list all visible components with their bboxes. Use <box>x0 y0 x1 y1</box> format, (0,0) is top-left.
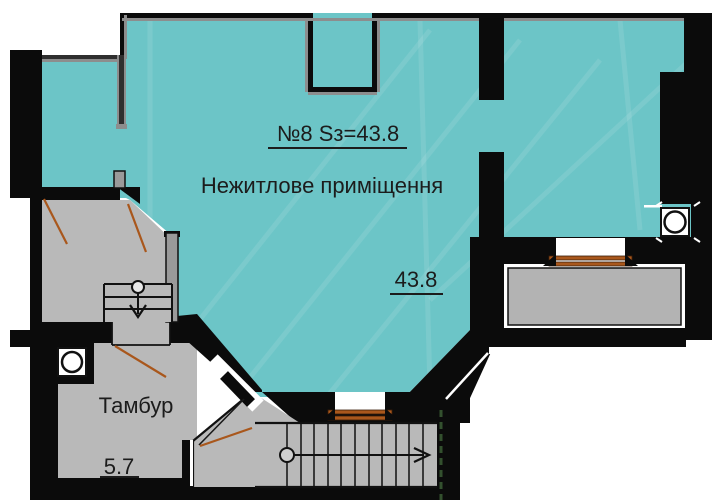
door-jamb <box>182 440 190 486</box>
top-left-room-bottom-wall <box>38 187 120 200</box>
pillar-upper <box>479 13 504 100</box>
vent-shaft-left <box>52 342 94 384</box>
vestibule-mid-wall-left <box>42 322 112 343</box>
small-stair-landing <box>112 322 170 346</box>
main-room-area: 43.8 <box>395 267 438 292</box>
main-room-name: Нежитлове приміщення <box>201 173 443 198</box>
window-balcony <box>543 238 638 266</box>
shaft-notch-right-wall <box>372 13 377 92</box>
unit-label: №8 Sз=43.8 <box>277 121 399 146</box>
vent-circle-icon <box>665 212 686 233</box>
pillar-lower <box>479 152 504 238</box>
floor-plan-canvas: №8 Sз=43.8 Нежитлове приміщення 43.8 Там… <box>0 0 712 500</box>
partition-right-cap <box>116 124 127 129</box>
bottom-wall-stairs <box>230 487 460 500</box>
partition-top-shadow <box>42 59 122 62</box>
balcony-bottom-wall <box>489 325 686 347</box>
right-wall-lower <box>684 268 712 347</box>
window-sill-bar <box>328 410 392 414</box>
balcony-left-notch <box>489 347 506 354</box>
vent-tick <box>644 205 662 208</box>
partition-right-core <box>119 55 124 124</box>
vestibule-area: 5.7 <box>104 454 135 479</box>
window-sill-bar <box>328 416 392 420</box>
window-sill-bar <box>549 256 632 260</box>
door-jamb-stub-top-left <box>114 171 125 188</box>
right-wall-mid <box>660 72 712 204</box>
small-stair-start-circle <box>132 281 144 293</box>
door-jamb-gap <box>190 440 193 486</box>
vent-circle-icon <box>62 352 82 372</box>
top-wall-right <box>372 13 686 18</box>
shaft-notch-bottom-wall <box>308 87 377 92</box>
top-wall-inner-shadow <box>122 18 684 21</box>
vestibule-name: Тамбур <box>99 393 174 418</box>
outer-wall-top-left <box>10 50 42 198</box>
window-opening <box>556 238 625 265</box>
notch-shadow-bottom <box>308 92 377 95</box>
balcony-right-notch <box>686 340 712 348</box>
right-wall-top <box>684 13 712 74</box>
notch-shadow-left <box>305 18 308 92</box>
shaft-notch-left-wall <box>308 13 313 92</box>
right-wall-vent-side <box>691 204 712 238</box>
balcony-slab <box>508 268 681 325</box>
window-sill-bar <box>549 262 632 266</box>
vestibule-mid-wall-right <box>170 322 197 343</box>
stair-start-circle <box>280 448 294 462</box>
left-wall-slab <box>30 198 42 343</box>
left-wall-shadow <box>124 15 127 59</box>
floor-plan-drawing: №8 Sз=43.8 Нежитлове приміщення 43.8 Там… <box>0 0 712 500</box>
left-wall-step <box>10 330 30 347</box>
top-wall-left <box>120 13 313 18</box>
notch-shadow-right <box>377 18 380 92</box>
partition-top <box>42 55 122 59</box>
